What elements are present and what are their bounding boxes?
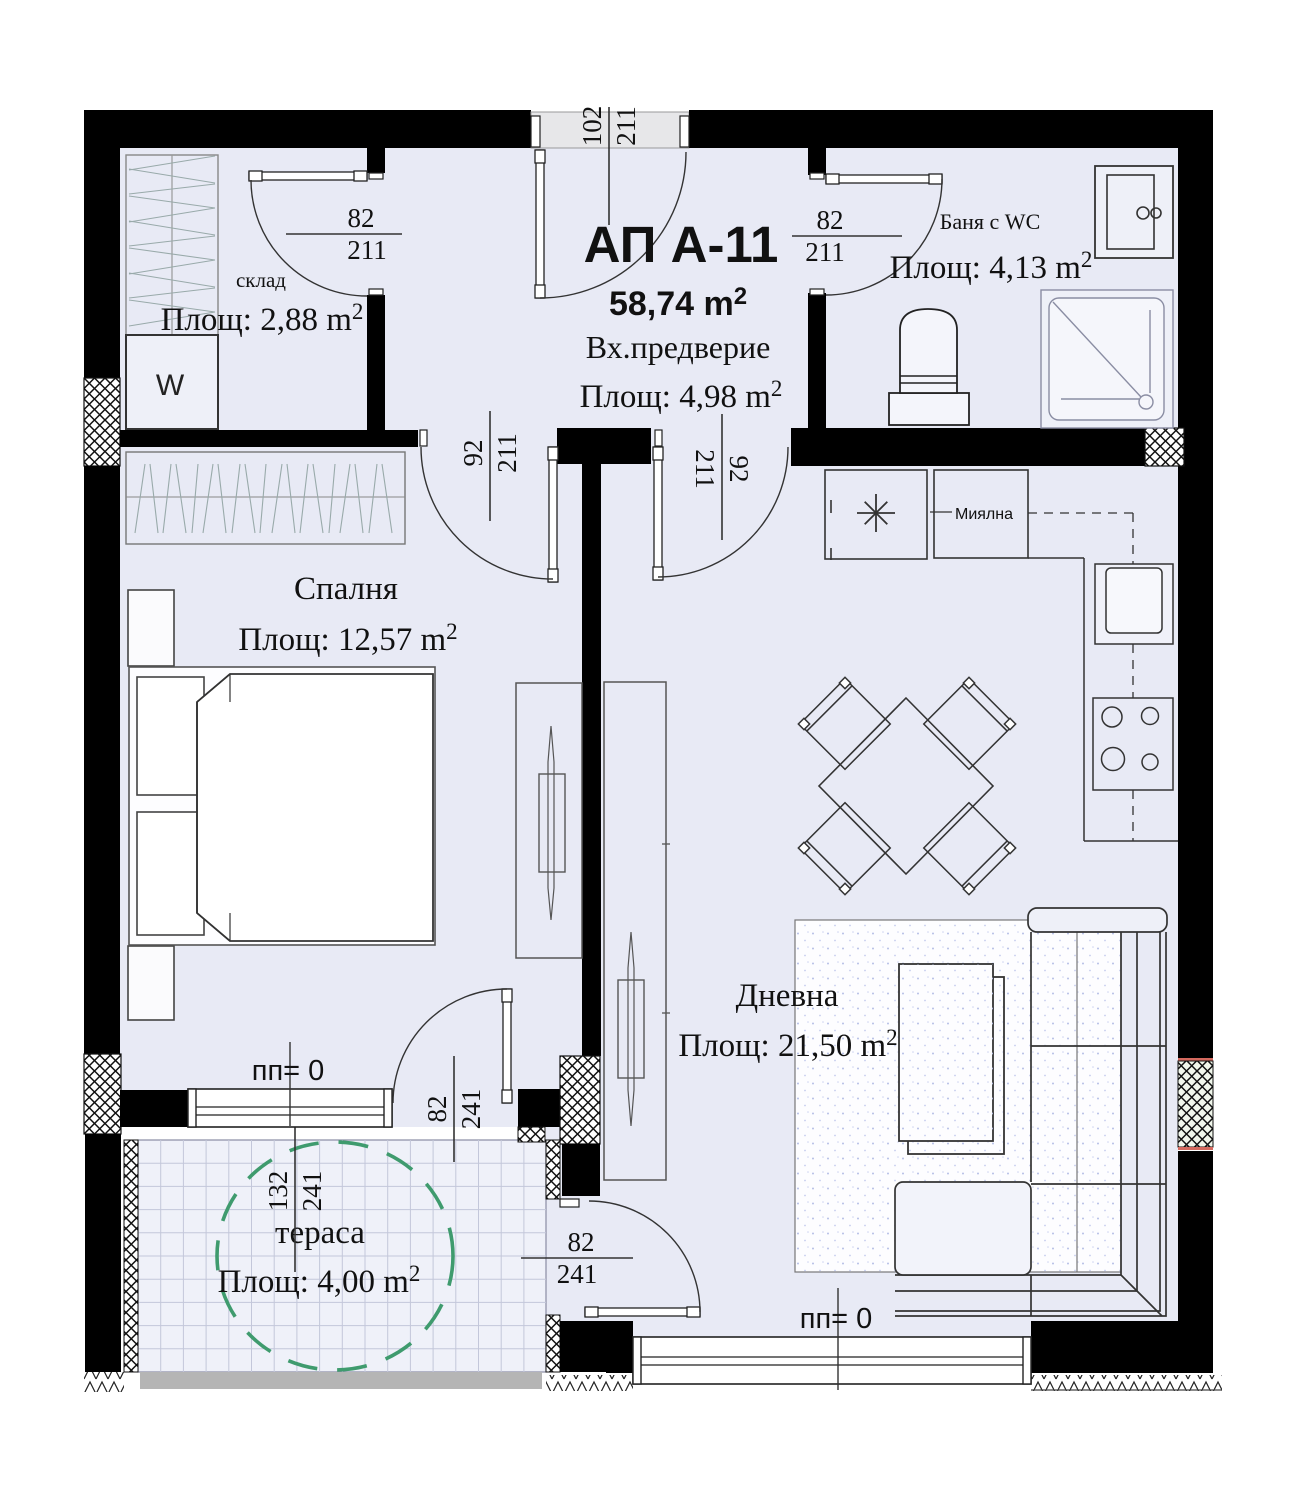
svg-text:склад: склад xyxy=(236,268,286,292)
svg-text:92: 92 xyxy=(724,456,754,483)
svg-text:211: 211 xyxy=(347,235,387,265)
svg-text:Площ: 2,88 m2: Площ: 2,88 m2 xyxy=(161,299,364,338)
svg-text:Площ: 4,98 m2: Площ: 4,98 m2 xyxy=(580,376,783,415)
svg-text:Миялна: Миялна xyxy=(955,506,1013,523)
svg-text:82: 82 xyxy=(817,205,844,235)
svg-text:Площ: 4,00 m2: Площ: 4,00 m2 xyxy=(218,1261,421,1300)
svg-text:пп= 0: пп= 0 xyxy=(252,1055,325,1087)
svg-text:пп= 0: пп= 0 xyxy=(800,1303,873,1335)
svg-text:211: 211 xyxy=(611,106,641,146)
svg-text:132: 132 xyxy=(263,1171,293,1212)
svg-text:Спалня: Спалня xyxy=(294,571,398,607)
svg-text:W: W xyxy=(156,369,185,402)
svg-text:58,74 m2: 58,74 m2 xyxy=(609,283,747,323)
svg-text:Площ: 4,13 m2: Площ: 4,13 m2 xyxy=(890,247,1093,286)
svg-text:тераса: тераса xyxy=(275,1215,365,1251)
svg-text:Дневна: Дневна xyxy=(736,978,839,1014)
svg-text:211: 211 xyxy=(690,449,720,489)
svg-text:Баня с WC: Баня с WC xyxy=(940,209,1041,234)
svg-text:241: 241 xyxy=(297,1171,327,1212)
svg-text:82: 82 xyxy=(348,203,375,233)
svg-text:241: 241 xyxy=(557,1259,598,1289)
svg-text:92: 92 xyxy=(458,440,488,467)
svg-text:102: 102 xyxy=(577,106,607,147)
svg-text:211: 211 xyxy=(805,237,845,267)
svg-text:82: 82 xyxy=(568,1227,595,1257)
svg-text:АП А-11: АП А-11 xyxy=(584,216,779,273)
svg-text:211: 211 xyxy=(492,433,522,473)
svg-text:Площ: 12,57 m2: Площ: 12,57 m2 xyxy=(238,619,457,658)
svg-text:82: 82 xyxy=(422,1096,452,1123)
svg-text:Площ: 21,50 m2: Площ: 21,50 m2 xyxy=(678,1025,897,1064)
svg-text:Вх.предверие: Вх.предверие xyxy=(586,329,771,365)
svg-text:241: 241 xyxy=(456,1089,486,1130)
